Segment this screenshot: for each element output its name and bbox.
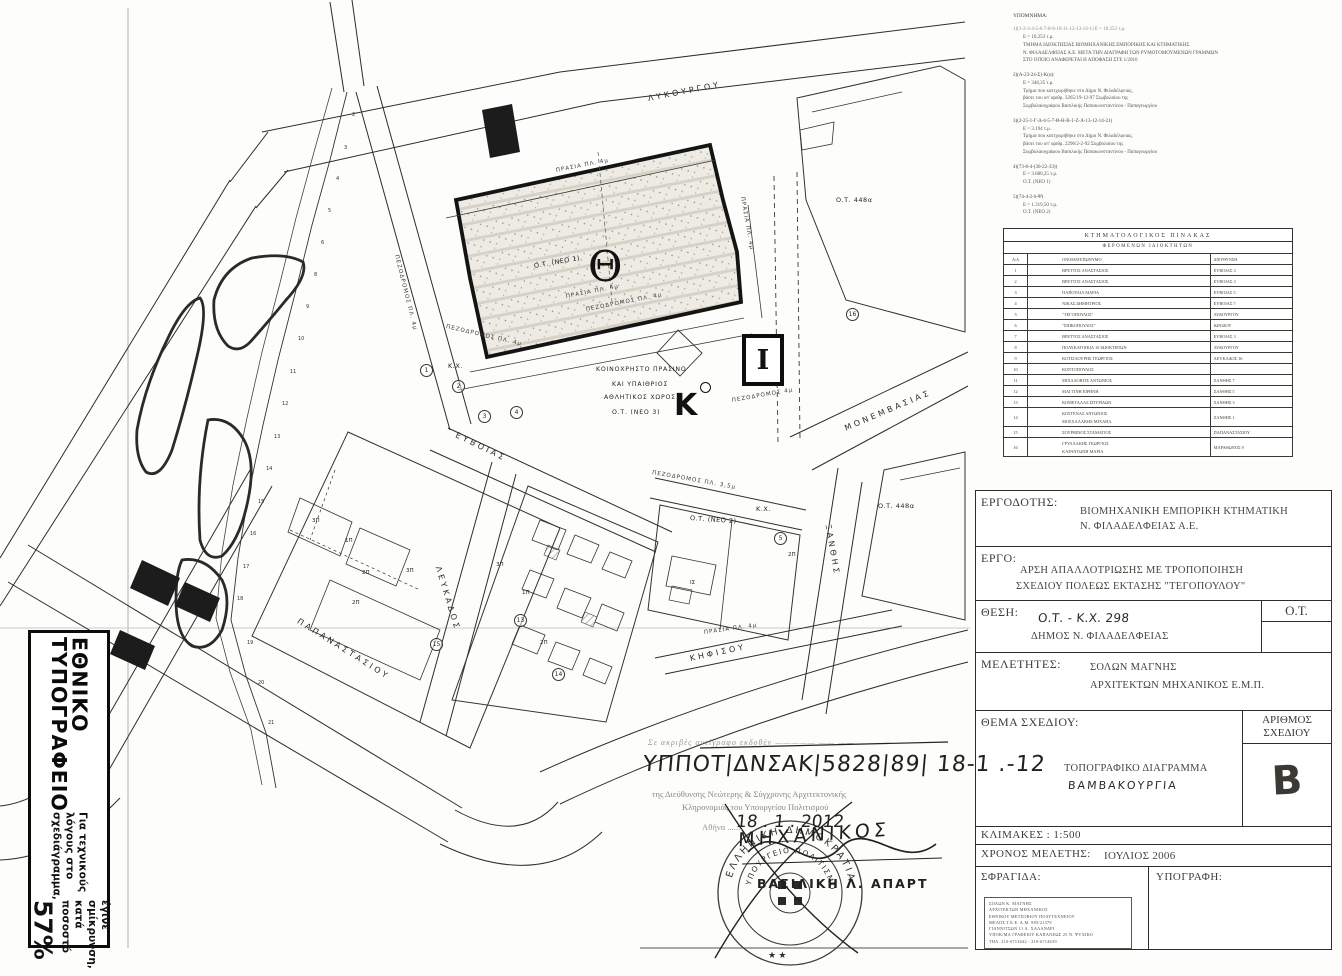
owner-name: ΚΟΣΤΕΝΑΣ ΑΝΤΩΝΙΟΣΜΟΣΧΑΛΑΚΗΣ ΜΙΧΑΗΛ (1028, 408, 1211, 427)
note-line: βάσει του υπ' αριθμ. 2296/2-2-92 Συμβολα… (1023, 141, 1335, 149)
note-line: Ο.Τ. (ΝΕΟ 2) (1023, 209, 1335, 217)
note-group: 1)(1-2-3-4-5-6-7-8-9-10-11-12-13-14-1) Ε… (1013, 26, 1335, 65)
ypografi-label: ΥΠΟΓΡΑΦΗ: (1156, 871, 1222, 883)
owner-name: ΚΟΝΤΟΠΟΥΛΟΣ (1028, 364, 1211, 375)
drawing-sheet: ΕΛΛΗΝΙΚΗ ΔΗΜΟΚΡΑΤΙΑ ΥΠΟΥΡΓΕΙΟ ΠΟΛΙΤΙΣΜΟΥ… (0, 0, 1342, 976)
owner-index: 2 (1004, 276, 1028, 287)
owner-name-2: ΚΑΡΑΝΤΩΝΗ ΜΑΡΙΑ (1062, 449, 1207, 454)
owner-name: ΒΡΕΤΤΟΣ ΑΝΑΣΤΑΣΙΟΣ (1028, 331, 1211, 342)
owner-name: ΝΙΚΑΣ ΔΗΜΗΤΡΙΟΣ (1028, 298, 1211, 309)
national-printing-box: ΕΘΝΙΚΟ ΤΥΠΟΓΡΑΦΕΙΟ Για τεχνικούς λόγους … (28, 630, 110, 948)
ergo-line1: ΑΡΣΗ ΑΠΑΛΛΟΤΡΙΩΣΗΣ ΜΕ ΤΡΟΠΟΠΟΙΗΣΗ (1020, 565, 1243, 576)
owner-index: 14 (1004, 408, 1028, 427)
row-meletites: ΜΕΛΕΤΗΤΕΣ: ΣΟΛΩΝ ΜΑΓΝΗΣ ΑΡΧΙΤΕΚΤΩΝ ΜΗΧΑΝ… (976, 653, 1331, 711)
thema-line1: ΤΟΠΟΓΡΑΦΙΚΟ ΔΙΑΓΡΑΜΜΑ (1064, 763, 1208, 774)
owner-index: 11 (1004, 375, 1028, 386)
table-row: 5"ΤΕΓΟΠΟΥΛΟΣ"ΛΥΚΟΥΡΓΟΥ (1004, 309, 1293, 320)
printing-office-title: ΕΘΝΙΚΟ ΤΥΠΟΓΡΑΦΕΙΟ (49, 637, 90, 812)
thesi-label: ΘΕΣΗ: (981, 605, 1018, 620)
note-line: Ν. ΦΙΛΑΔΕΛΦΕΙΑΣ Α.Ε. ΜΕΤΑ ΤΗΝ ΔΙΑΓΡΑΦΗ Τ… (1023, 50, 1335, 58)
owner-name: ΣΟΥΡΒΙΝΟΣ ΣΤΑΜΑΤΙΟΣ (1028, 427, 1211, 438)
approval-directorate-line2: Κληρονομιάς του Υπουργείου Πολιτισμού (682, 802, 828, 812)
hatched-houses (544, 545, 597, 627)
owner-index: 5 (1004, 309, 1028, 320)
drawing-number-value: Β (1242, 756, 1332, 807)
approval-directorate-line1: της Διεύθυνσης Νεώτερης & Σύγχρονης Αρχι… (652, 789, 846, 799)
owner-index: 16 (1004, 438, 1028, 457)
note-group: 4)(73-8-4-(30-22-33))Ε = 3.680,25 τ.μ.Ο.… (1013, 164, 1335, 187)
ergo-line2: ΣΧΕΔΙΟΥ ΠΟΛΕΩΣ ΕΚΤΑΣΗΣ "ΤΕΓΟΠΟΥΛΟΥ" (1016, 581, 1245, 592)
boundary-polyline-2 (216, 88, 332, 785)
table-row: 4ΝΙΚΑΣ ΔΗΜΗΤΡΙΟΣΕΥΒΟΙΑΣ 7 (1004, 298, 1293, 309)
owner-address (1210, 364, 1292, 375)
ministry-round-stamp: ΕΛΛΗΝΙΚΗ ΔΗΜΟΚΡΑΤΙΑ ΥΠΟΥΡΓΕΙΟ ΠΟΛΙΤΙΣΜΟΥ… (0, 0, 862, 965)
study-date-label: ΧΡΟΝΟΣ ΜΕΛΕΤΗΣ: (981, 848, 1091, 860)
theta-block-symbol: Θ (588, 242, 622, 291)
block-448a (797, 66, 965, 332)
small-circle-symbol (700, 382, 711, 393)
owner-name: "ΤΕΓΟΠΟΥΛΟΣ" (1028, 309, 1211, 320)
ergo-label: ΕΡΓΟ: (981, 551, 1016, 566)
thesi-ot-label: Ο.Τ. (1262, 603, 1331, 622)
reduction-note-line1: Για τεχνικούς λόγους στο σχεδιάγραμμα, (49, 812, 88, 900)
owner-address: ΕΥΒΟΙΑΣ 3 (1210, 276, 1292, 287)
table-row: 1ΒΡΕΤΤΟΣ ΑΝΑΣΤΑΣΙΟΣΕΥΒΟΙΑΣ 3 (1004, 265, 1293, 276)
owner-address: ΕΥΒΟΙΑΣ 7 (1210, 298, 1292, 309)
owner-address: ΞΑΝΘΗΣ 7 (1210, 375, 1292, 386)
thema-hand: ΒΑΜΒΑΚΟΥΡΓΙΑ (1068, 779, 1179, 792)
row-ergodotis: ΕΡΓΟΔΟΤΗΣ: ΒΙΟΜΗΧΑΝΙΚΗ ΕΜΠΟΡΙΚΗ ΚΤΗΜΑΤΙΚ… (976, 491, 1331, 547)
boxed-iota-symbol: Ι (742, 334, 784, 386)
reduction-note-line2: έγινε σμίκρυνση, κατά ποσοστό 57% (27, 900, 111, 969)
stamp-stars: ★ ★ (768, 950, 786, 960)
row-klimakes: ΚΛΙΜΑΚΕΣ : 1:500 (976, 827, 1331, 845)
note-line: Ε = 3.194 τ.μ. (1023, 126, 1335, 134)
row-sfragida: ΣΦΡΑΓΙΔΑ: ΣΟΛΩΝ Κ. ΜΑΓΝΗΣΑΡΧΙΤΕΚΤΩΝ ΜΗΧΑ… (976, 867, 1331, 949)
note-line: Συμβολαιογράφου Βασιλικής Παπακωνσταντίν… (1023, 149, 1335, 157)
owner-name: ΜΙΧΑΛΟΒΙΤΣ ΑΝΤΩΝΙΟΣ (1028, 375, 1211, 386)
note-group-header: 4)(73-8-4-(30-22-33)) (1013, 164, 1335, 172)
architect-seal: ΣΟΛΩΝ Κ. ΜΑΓΝΗΣΑΡΧΙΤΕΚΤΩΝ ΜΗΧΑΝΙΚΟΣΕΘΝΙΚ… (984, 897, 1132, 949)
sfragida-label: ΣΦΡΑΓΙΔΑ: (981, 871, 1041, 883)
col-address: ΔΙΕΥΘΥΝΣΗ (1210, 254, 1292, 265)
table-row: 7ΒΡΕΤΤΟΣ ΑΝΑΣΤΑΣΙΟΣΕΥΒΟΙΑΣ 3 (1004, 331, 1293, 342)
ergodotis-label: ΕΡΓΟΔΟΤΗΣ: (981, 495, 1058, 510)
block-b-houses (452, 486, 658, 722)
owner-index: 1 (1004, 265, 1028, 276)
owner-index: 6 (1004, 320, 1028, 331)
note-line: Ε = 348,35 τ.μ. (1023, 80, 1335, 88)
study-date-value: ΙΟΥΛΙΟΣ 2006 (1104, 850, 1176, 862)
drawing-number-cell: ΑΡΙΘΜΟΣ ΣΧΕΔΙΟΥ Β (1242, 711, 1331, 826)
owner-address: ΛΥΚΟΥΡΓΟΥ (1210, 309, 1292, 320)
note-line: Ε = 3.680,25 τ.μ. (1023, 171, 1335, 179)
approval-protocol-hand: ΥΠΠΟΤ|ΔΝΣΑΚ|5828|89| 18-1 .-12 (642, 752, 1047, 777)
drawing-number-label: ΑΡΙΘΜΟΣ ΣΧΕΔΙΟΥ (1243, 711, 1331, 744)
table-row: 10ΚΟΝΤΟΠΟΥΛΟΣ (1004, 364, 1293, 375)
owner-name: ΚΟΜΕΤΑΛΑΣ ΣΠΥΡΙΔΩΝ (1028, 397, 1211, 408)
note-line: Ο.Τ. (ΝΕΟ 1) (1023, 179, 1335, 187)
note-line: ΣΤΟ ΟΠΟΙΟ ΑΝΑΦΕΡΕΤΑΙ Η ΑΠΟΦΑΣΗ ΣΤΕ 1/201… (1023, 57, 1335, 65)
thesi-municipality: ΔΗΜΟΣ Ν. ΦΙΛΑΔΕΛΦΕΙΑΣ (1031, 631, 1169, 642)
note-line: Συμβολαιογράφου Βασιλικής Παπακωνσταντίν… (1023, 103, 1335, 111)
table-row: 15ΣΟΥΡΒΙΝΟΣ ΣΤΑΜΑΤΙΟΣΠΑΠΑΝΑΣΤΑΣΙΟΥ (1004, 427, 1293, 438)
owner-address: ΙΩΝΙΔΟΥ (1210, 320, 1292, 331)
title-block: ΕΡΓΟΔΟΤΗΣ: ΒΙΟΜΗΧΑΝΙΚΗ ΕΜΠΟΡΙΚΗ ΚΤΗΜΑΤΙΚ… (975, 490, 1332, 950)
row-xronos: ΧΡΟΝΟΣ ΜΕΛΕΤΗΣ: ΙΟΥΛΙΟΣ 2006 (976, 845, 1331, 867)
owner-index: 13 (1004, 397, 1028, 408)
legend-notes: ΥΠΟΜΝΗΜΑ: 1)(1-2-3-4-5-6-7-8-9-10-11-12-… (1013, 12, 1335, 224)
table-row: 6"ΣΠΙΚΟΠΟΥΛΟΣ"ΙΩΝΙΔΟΥ (1004, 320, 1293, 331)
dashed-street-line (774, 172, 800, 442)
diamond-parcel (657, 330, 702, 376)
boundary-polyline (231, 92, 347, 788)
owner-index: 3 (1004, 287, 1028, 298)
owner-address: ΕΥΒΟΙΑΣ 5 (1210, 287, 1292, 298)
seal-line: ΤΗΛ. 210-6713642 - 210-6714639 (989, 939, 1127, 945)
kappa-area-symbol: Κ (674, 388, 697, 423)
arith-label-2: ΣΧΕΔΙΟΥ (1263, 727, 1310, 739)
cell-divider (1148, 867, 1149, 949)
note-line: βάσει του υπ' αριθμ. 3265/19-12-97 Συμβο… (1023, 95, 1335, 103)
thesi-ot-cell: Ο.Τ. (1261, 601, 1331, 652)
table-row: 9ΚΟΤΣΙΛΟΥΡΗΣ ΓΕΩΡΓΙΟΣΛΕΥΚΑΔΟΣ 16 (1004, 353, 1293, 364)
reduction-percent: 57% (28, 900, 57, 960)
owner-name: ΠΟΛΥΚΑΤΟΙΚΙΑ 10 ΙΔΙΟΚΤΗΤΩΝ (1028, 342, 1211, 353)
block-a (252, 432, 560, 748)
note-group-header: 2)(Α-23-24-Σ)-Κ(α): (1013, 72, 1335, 80)
owner-name: ΓΡΥΛΛΑΚΗΣ ΓΕΩΡΓΙΟΣΚΑΡΑΝΤΩΝΗ ΜΑΡΙΑ (1028, 438, 1211, 457)
owner-name: ΜΑΓΓΙΝΗ ΕΙΡΗΝΗ (1028, 386, 1211, 397)
note-line: Ε = 1.319,50 τ.μ. (1023, 202, 1335, 210)
owner-name: ΒΡΕΤΤΟΣ ΑΝΑΣΤΑΣΙΟΣ (1028, 265, 1211, 276)
note-group-header: 5)(74-4-2-6-Ψ) (1013, 194, 1335, 202)
owner-address: ΞΑΝΘΗΣ 1 (1210, 408, 1292, 427)
owner-index: 10 (1004, 364, 1028, 375)
table-subcaption: ΦΕΡΟΜΕΝΩΝ ΙΔΙΟΚΤΗΤΩΝ (1003, 241, 1293, 253)
owner-address: ΜΑΡΑΘΩΝΟΣ 9 (1210, 438, 1292, 457)
owner-index: 7 (1004, 331, 1028, 342)
note-line: Ε = 10.253 τ.μ. (1023, 34, 1335, 42)
solid-buildings (110, 104, 520, 670)
table-row: 14ΚΟΣΤΕΝΑΣ ΑΝΤΩΝΙΟΣΜΟΣΧΑΛΑΚΗΣ ΜΙΧΑΗΛΞΑΝΘ… (1004, 408, 1293, 427)
table-row: 16ΓΡΥΛΛΑΚΗΣ ΓΕΩΡΓΙΟΣΚΑΡΑΝΤΩΝΗ ΜΑΡΙΑΜΑΡΑΘ… (1004, 438, 1293, 457)
reduction-note-text: έγινε σμίκρυνση, κατά ποσοστό (60, 900, 111, 969)
thesi-location-hand: Ο.Τ. - Κ.Χ. 298 (1038, 611, 1130, 625)
owner-index: 4 (1004, 298, 1028, 309)
owner-address: ΛΥΚΟΥΡΓΟΥ (1210, 342, 1292, 353)
scale-text: ΚΛΙΜΑΚΕΣ : 1:500 (981, 829, 1081, 841)
col-name: ΟΝΟΜΑΤΕΠΩΝΥΜΟ (1028, 254, 1211, 265)
owner-index: 15 (1004, 427, 1028, 438)
road-network (0, 0, 968, 865)
note-group-header: 3)(2-25-1-Γ-Δ-4-5-7-Θ-Η-Β-1-Ζ-Α-13-12-14… (1013, 118, 1335, 126)
legend-groups: 1)(1-2-3-4-5-6-7-8-9-10-11-12-13-14-1) Ε… (1013, 26, 1335, 217)
note-group: 3)(2-25-1-Γ-Δ-4-5-7-Θ-Η-Β-1-Ζ-Α-13-12-14… (1013, 118, 1335, 157)
meletites-line2: ΑΡΧΙΤΕΚΤΩΝ ΜΗΧΑΝΙΚΟΣ Ε.Μ.Π. (1090, 680, 1264, 691)
owner-name: ΠΑΠΟΥΛΙΑ ΜΑΡΙΑ (1028, 287, 1211, 298)
owner-name-2: ΜΟΣΧΑΛΑΚΗΣ ΜΙΧΑΗΛ (1062, 419, 1207, 424)
approval-signatory-name: ΒΑΣΙΛΙΚΗ Λ. ΑΠΑΡΤ (757, 876, 929, 891)
table-row: 8ΠΟΛΥΚΑΤΟΙΚΙΑ 10 ΙΔΙΟΚΤΗΤΩΝΛΥΚΟΥΡΓΟΥ (1004, 342, 1293, 353)
east-block (862, 452, 965, 620)
table-row: 3ΠΑΠΟΥΛΙΑ ΜΑΡΙΑΕΥΒΟΙΑΣ 5 (1004, 287, 1293, 298)
approval-faint-line: Σε ακριβές αντίγραφο εκδοθέν ————— —— —— (648, 738, 854, 747)
note-line: Τμήμα που κατεχωρήθηκε στο Δήμο Ν. Φιλαδ… (1023, 88, 1335, 96)
owner-address: ΞΑΝΘΗΣ 3 (1210, 397, 1292, 408)
arith-label-1: ΑΡΙΘΜΟΣ (1262, 714, 1312, 726)
ergodotis-line2: Ν. ΦΙΛΑΔΕΛΦΕΙΑΣ Α.Ε. (1080, 521, 1199, 532)
thema-label: ΘΕΜΑ ΣΧΕΔΙΟΥ: (981, 715, 1079, 730)
meletites-label: ΜΕΛΕΤΗΤΕΣ: (981, 657, 1061, 672)
owner-index: 12 (1004, 386, 1028, 397)
owner-address: ΕΥΒΟΙΑΣ 3 (1210, 331, 1292, 342)
owner-name: ΒΡΕΤΤΟΣ ΑΝΑΣΤΑΣΙΟΣ (1028, 276, 1211, 287)
table-row: 2ΒΡΕΤΤΟΣ ΑΝΑΣΤΑΣΙΟΣΕΥΒΟΙΑΣ 3 (1004, 276, 1293, 287)
row-ergo: ΕΡΓΟ: ΑΡΣΗ ΑΠΑΛΛΟΤΡΙΩΣΗΣ ΜΕ ΤΡΟΠΟΠΟΙΗΣΗ … (976, 547, 1331, 601)
owner-address: ΛΕΥΚΑΔΟΣ 16 (1210, 353, 1292, 364)
note-line: Τμήμα που κατεχωρήθηκε στο Δήμο Ν. Φιλαδ… (1023, 133, 1335, 141)
col-aa: Α/Α (1004, 254, 1028, 265)
owner-index: 8 (1004, 342, 1028, 353)
note-group: 2)(Α-23-24-Σ)-Κ(α):Ε = 348,35 τ.μ.Τμήμα … (1013, 72, 1335, 111)
owner-name: ΚΟΤΣΙΛΟΥΡΗΣ ΓΕΩΡΓΙΟΣ (1028, 353, 1211, 364)
table-row: 11ΜΙΧΑΛΟΒΙΤΣ ΑΝΤΩΝΙΟΣΞΑΝΘΗΣ 7 (1004, 375, 1293, 386)
row-thesi: ΘΕΣΗ: Ο.Τ. - Κ.Χ. 298 ΔΗΜΟΣ Ν. ΦΙΛΑΔΕΛΦΕ… (976, 601, 1331, 653)
note-line: ΤΜΗΜΑ ΙΔΙΟΚΤΗΣΙΑΣ ΒΙΟΜΗΧΑΝΙΚΗΣ ΕΜΠΟΡΙΚΗΣ… (1023, 42, 1335, 50)
meletites-line1: ΣΟΛΩΝ ΜΑΓΝΗΣ (1090, 662, 1177, 673)
owner-address: ΠΑΠΑΝΑΣΤΑΣΙΟΥ (1210, 427, 1292, 438)
owner-address: ΕΥΒΟΙΑΣ 3 (1210, 265, 1292, 276)
table-caption: ΚΤΗΜΑΤΟΛΟΓΙΚΟΣ ΠΙΝΑΚΑΣ (1003, 228, 1293, 241)
table-row: 13ΚΟΜΕΤΑΛΑΣ ΣΠΥΡΙΔΩΝΞΑΝΘΗΣ 3 (1004, 397, 1293, 408)
note-group: 5)(74-4-2-6-Ψ)Ε = 1.319,50 τ.μ.Ο.Τ. (ΝΕΟ… (1013, 194, 1335, 217)
owner-address: ΞΑΝΘΗΣ 5 (1210, 386, 1292, 397)
owner-name: "ΣΠΙΚΟΠΟΥΛΟΣ" (1028, 320, 1211, 331)
note-group-header: 1)(1-2-3-4-5-6-7-8-9-10-11-12-13-14-1) Ε… (1013, 26, 1335, 34)
owner-index: 9 (1004, 353, 1028, 364)
cadastral-table: ΚΤΗΜΑΤΟΛΟΓΙΚΟΣ ΠΙΝΑΚΑΣ ΦΕΡΟΜΕΝΩΝ ΙΔΙΟΚΤΗ… (1003, 228, 1293, 457)
legend-title: ΥΠΟΜΝΗΜΑ: (1013, 12, 1335, 20)
ergodotis-line1: ΒΙΟΜΗΧΑΝΙΚΗ ΕΜΠΟΡΙΚΗ ΚΤΗΜΑΤΙΚΗ (1080, 506, 1288, 517)
table-header-row: Α/Α ΟΝΟΜΑΤΕΠΩΝΥΜΟ ΔΙΕΥΘΥΝΣΗ (1004, 254, 1293, 265)
table-row: 12ΜΑΓΓΙΝΗ ΕΙΡΗΝΗΞΑΝΘΗΣ 5 (1004, 386, 1293, 397)
